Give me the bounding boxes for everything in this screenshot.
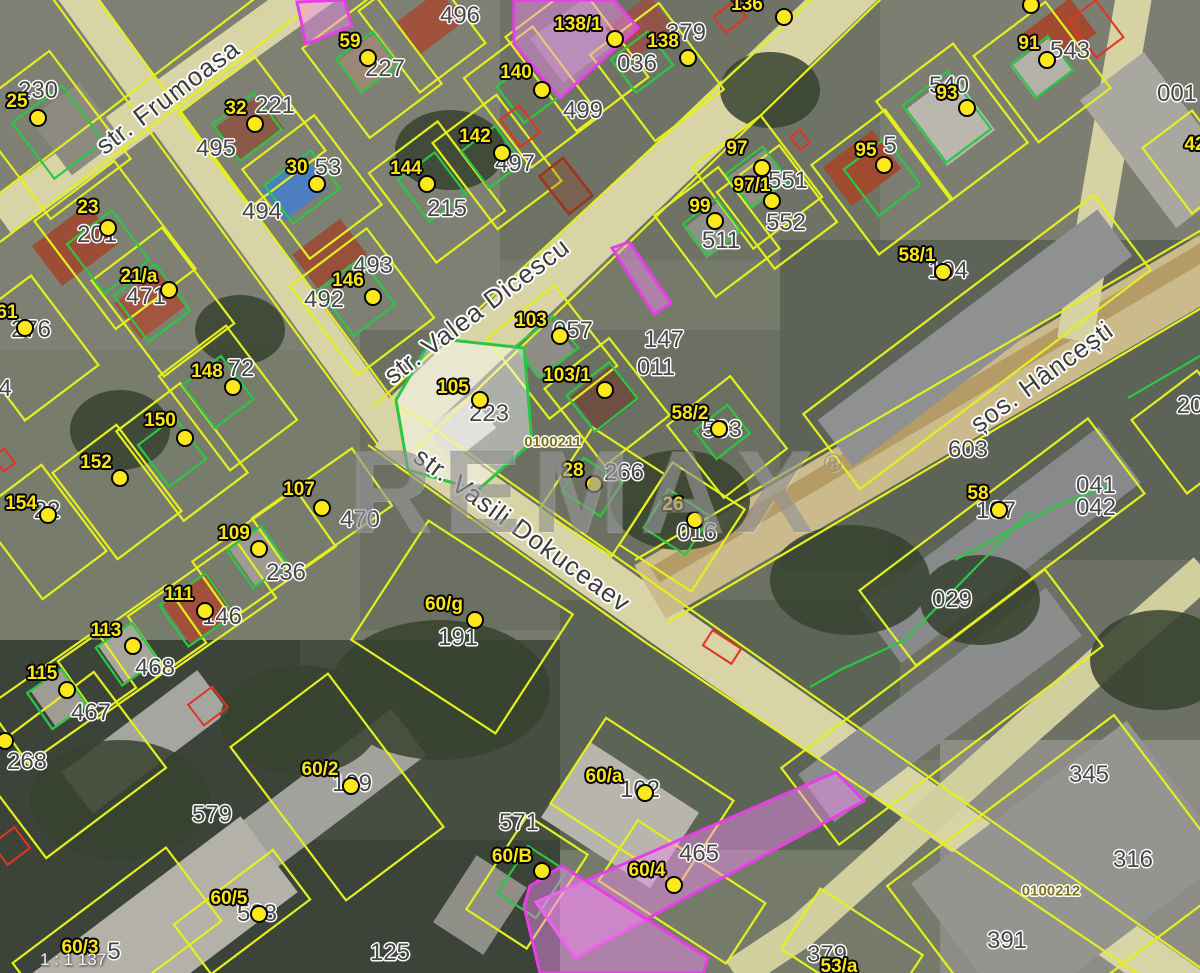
building-number-494: 494 <box>242 198 282 226</box>
parcel-dot[interactable] <box>359 49 377 67</box>
building-number-4: 4 <box>0 375 12 403</box>
parcel-label-21-a[interactable]: 21/a <box>121 266 158 288</box>
parcel-label-103[interactable]: 103 <box>515 310 547 332</box>
parcel-label-115[interactable]: 115 <box>27 663 58 685</box>
parcel-dot[interactable] <box>160 281 178 299</box>
parcel-label-150[interactable]: 150 <box>144 410 176 432</box>
parcel-dot[interactable] <box>686 511 704 529</box>
parcel-dot[interactable] <box>250 905 268 923</box>
parcel-dot[interactable] <box>710 420 728 438</box>
parcel-label-99[interactable]: 99 <box>689 196 710 218</box>
building-number-579: 579 <box>192 801 232 829</box>
parcel-label-60-4[interactable]: 60/4 <box>629 860 666 882</box>
parcel-label-146[interactable]: 146 <box>332 270 364 292</box>
parcel-dot[interactable] <box>679 49 697 67</box>
parcel-label-60-5[interactable]: 60/5 <box>211 888 248 910</box>
parcel-label-60-a[interactable]: 60/a <box>586 766 623 788</box>
building-number-495: 495 <box>196 135 236 163</box>
parcel-label-138[interactable]: 138 <box>647 31 679 53</box>
building-number-543: 543 <box>1050 37 1090 65</box>
parcel-label-32[interactable]: 32 <box>225 98 246 120</box>
parcel-dot[interactable] <box>364 288 382 306</box>
parcel-label-58-2[interactable]: 58/2 <box>672 403 709 425</box>
building-number-603: 603 <box>948 436 988 464</box>
parcel-label-93[interactable]: 93 <box>936 83 957 105</box>
parcel-dot[interactable] <box>775 8 793 26</box>
building-number-147: 147 <box>644 326 684 354</box>
parcel-dot[interactable] <box>58 681 76 699</box>
building-number-011: 011 <box>637 354 675 382</box>
parcel-label-30[interactable]: 30 <box>286 157 307 179</box>
parcel-label-42[interactable]: 42 <box>1184 134 1200 156</box>
parcel-label-138-1[interactable]: 138/1 <box>554 14 602 36</box>
building-number-499: 499 <box>563 97 603 125</box>
building-number-221: 221 <box>255 92 295 120</box>
parcel-dot[interactable] <box>99 219 117 237</box>
parcel-label-26[interactable]: 26 <box>662 494 683 516</box>
parcel-label-25[interactable]: 25 <box>6 91 27 113</box>
building-number-215: 215 <box>427 195 467 223</box>
parcel-label-95[interactable]: 95 <box>855 140 876 162</box>
parcel-label-23[interactable]: 23 <box>77 197 98 219</box>
building-number-571: 571 <box>499 809 539 837</box>
parcel-dot[interactable] <box>111 469 129 487</box>
parcel-dot[interactable] <box>1038 51 1056 69</box>
building-number-465: 465 <box>679 840 719 868</box>
parcel-label-142[interactable]: 142 <box>459 126 491 148</box>
parcel-label-97-1[interactable]: 97/1 <box>734 175 771 197</box>
parcel-dot[interactable] <box>29 109 47 127</box>
building-number-470: 470 <box>340 506 380 534</box>
parcel-dot[interactable] <box>176 429 194 447</box>
parcel-dot[interactable] <box>250 540 268 558</box>
parcel-label-105[interactable]: 105 <box>437 377 469 399</box>
parcel-label-60-g[interactable]: 60/g <box>425 594 463 616</box>
building-number-552: 552 <box>766 209 806 237</box>
parcel-label-59[interactable]: 59 <box>339 31 360 53</box>
parcel-dot[interactable] <box>533 862 551 880</box>
sector-number-0100211: 0100211 <box>524 434 582 451</box>
building-number-268: 268 <box>7 748 47 776</box>
parcel-label-97[interactable]: 97 <box>726 138 747 160</box>
parcel-dot[interactable] <box>636 784 654 802</box>
building-number-316: 316 <box>1113 846 1153 874</box>
building-number-551: 551 <box>768 167 808 195</box>
parcel-label-53-a[interactable]: 53/a <box>821 956 858 973</box>
parcel-label-113[interactable]: 113 <box>91 620 122 642</box>
parcel-dot[interactable] <box>493 144 511 162</box>
parcel-label-60-b[interactable]: 60/B <box>492 846 532 868</box>
parcel-dot[interactable] <box>934 263 952 281</box>
parcel-dot[interactable] <box>313 499 331 517</box>
parcel-label-111[interactable]: 111 <box>164 584 194 606</box>
building-number-125: 125 <box>370 939 410 967</box>
parcel-label-152[interactable]: 152 <box>80 452 112 474</box>
parcel-label-61[interactable]: 61 <box>0 302 18 324</box>
building-number-042: 042 <box>1076 494 1116 522</box>
parcel-dot[interactable] <box>875 156 893 174</box>
building-number-468: 468 <box>135 654 175 682</box>
parcel-dot[interactable] <box>958 99 976 117</box>
building-number-236: 236 <box>266 559 306 587</box>
parcel-dot[interactable] <box>224 378 242 396</box>
parcel-dot[interactable] <box>471 391 489 409</box>
parcel-label-28[interactable]: 28 <box>562 460 583 482</box>
building-number-5: 5 <box>107 938 120 966</box>
building-number-036: 036 <box>617 50 657 78</box>
parcel-dot[interactable] <box>990 501 1008 519</box>
parcel-dot[interactable] <box>16 319 34 337</box>
parcel-dot[interactable] <box>308 175 326 193</box>
parcel-label-136[interactable]: 136 <box>731 0 763 16</box>
parcel-dot[interactable] <box>342 777 360 795</box>
building-number-345: 345 <box>1069 761 1109 789</box>
parcel-label-140[interactable]: 140 <box>500 62 532 84</box>
parcel-dot[interactable] <box>124 637 142 655</box>
parcel-label-58-1[interactable]: 58/1 <box>899 245 936 267</box>
building-number-511: 511 <box>702 227 740 255</box>
parcel-label-109[interactable]: 109 <box>218 523 250 545</box>
building-number-20: 20 <box>1177 392 1200 420</box>
parcel-label-91[interactable]: 91 <box>1018 33 1039 55</box>
parcel-dot[interactable] <box>551 327 569 345</box>
building-number-029: 029 <box>932 586 972 614</box>
parcel-label-103-1[interactable]: 103/1 <box>543 365 591 387</box>
parcel-dot[interactable] <box>596 381 614 399</box>
building-number-001: 001 <box>1157 80 1197 108</box>
parcel-dot[interactable] <box>533 81 551 99</box>
parcel-label-58[interactable]: 58 <box>967 483 988 505</box>
parcel-label-144[interactable]: 144 <box>390 158 422 180</box>
sector-number-0100212: 0100212 <box>1022 883 1080 900</box>
parcel-dot[interactable] <box>585 475 603 493</box>
parcel-dot[interactable] <box>606 30 624 48</box>
scale-indicator: 1 : 1 137 <box>40 950 106 970</box>
building-number-496: 496 <box>440 2 480 30</box>
parcel-label-60-2[interactable]: 60/2 <box>302 759 339 781</box>
parcel-dot[interactable] <box>665 876 683 894</box>
parcel-label-148[interactable]: 148 <box>191 361 223 383</box>
building-number-467: 467 <box>71 699 111 727</box>
parcel-dot[interactable] <box>466 611 484 629</box>
parcel-label-107[interactable]: 107 <box>283 479 315 501</box>
building-number-266: 266 <box>604 459 644 487</box>
parcel-dot[interactable] <box>39 506 57 524</box>
parcel-dot[interactable] <box>196 602 214 620</box>
map-canvas[interactable]: 2302014712764724934924954942212275349649… <box>0 0 1200 973</box>
parcel-label-154[interactable]: 154 <box>5 493 37 515</box>
parcel-dot[interactable] <box>246 115 264 133</box>
building-number-391: 391 <box>987 927 1027 955</box>
